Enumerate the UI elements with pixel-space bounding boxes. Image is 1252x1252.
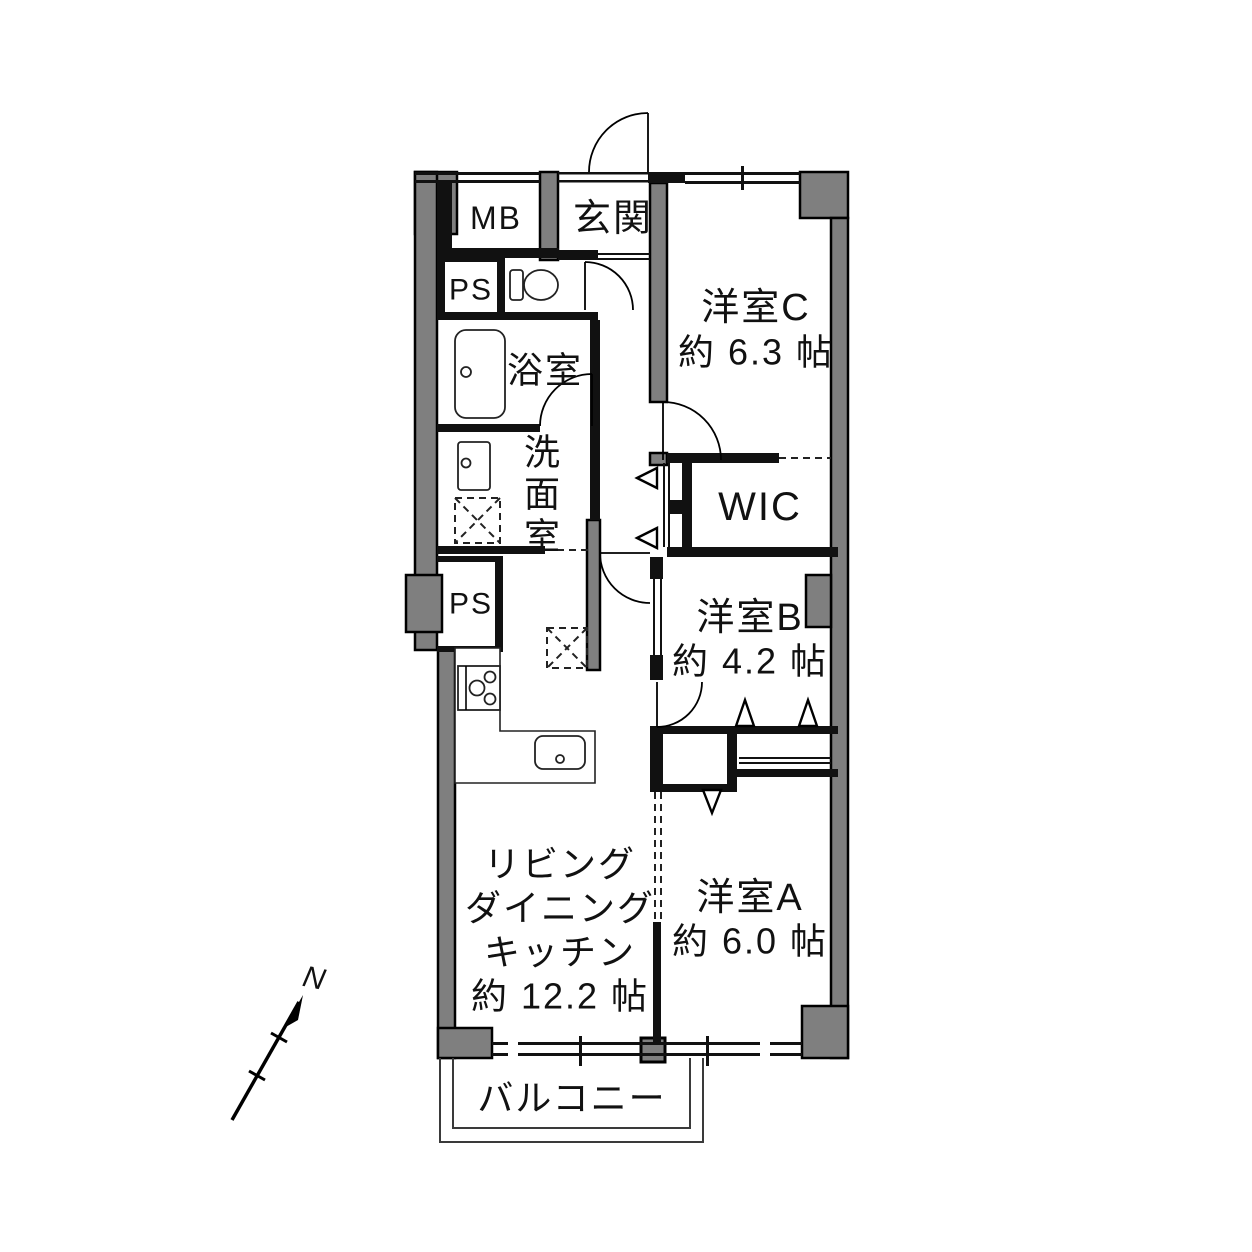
wall-segment: [650, 784, 737, 792]
kitchen-sink-icon: [535, 736, 585, 769]
door-arc: [589, 113, 648, 172]
sliding-door-track: [653, 579, 655, 655]
washing-machine-pan-icon: [455, 498, 500, 543]
wall-segment: [650, 726, 663, 792]
wall-segment: [587, 520, 600, 670]
window-mullion: [741, 166, 744, 190]
window-line: [492, 1042, 802, 1045]
toilet-door: [585, 262, 633, 310]
wall-segment: [438, 648, 455, 1058]
wall-segment: [727, 769, 838, 777]
entrance-sill-line: [558, 172, 650, 175]
wall-segment: [437, 556, 503, 562]
wall-segment: [438, 1028, 492, 1058]
slide-left-arrow-icon: [637, 528, 657, 548]
fold-up-arrow-icon: [736, 700, 754, 726]
wall-segment: [497, 256, 505, 320]
toilet-tank: [510, 270, 523, 300]
wall-line: [415, 180, 540, 183]
wall-line: [415, 172, 540, 175]
floor-plan-svg: N MB 玄関 PS 浴室 洗 面 室 洋室C 約 6.3 帖 WIC 洋室B …: [0, 0, 1252, 1252]
window-line: [492, 1053, 802, 1056]
closet-door-line: [739, 762, 831, 764]
wall-segment: [495, 556, 503, 652]
western-c-size: 約 6.3 帖: [678, 332, 834, 373]
floor-plan: N MB 玄関 PS 浴室 洗 面 室 洋室C 約 6.3 帖 WIC 洋室B …: [0, 0, 1252, 1252]
compass-north-label: N: [300, 960, 330, 997]
sink-outline: [535, 736, 585, 769]
ldk-label-line1: リビング: [484, 844, 636, 885]
wall-segment: [648, 172, 685, 183]
western-b-size: 約 4.2 帖: [672, 641, 828, 682]
kitchen-counter-icon: [455, 648, 595, 783]
fold-up-arrow-icon: [799, 700, 817, 726]
ldk-label-line2: ダイニング: [465, 888, 655, 929]
wall-segment: [668, 500, 682, 514]
wall-segment: [667, 453, 779, 463]
entrance-door: [589, 113, 648, 172]
window-mullion: [706, 1036, 709, 1066]
entrance-step-line: [558, 258, 650, 260]
washroom-label-char3: 室: [524, 516, 562, 557]
door-arc: [657, 682, 702, 727]
wash-basin-icon: [458, 442, 490, 490]
stove-burner: [485, 694, 496, 705]
stove-icon: [458, 666, 500, 710]
hall-ldk-door: [600, 553, 650, 603]
wall-segment: [437, 256, 505, 262]
basin-faucet: [462, 459, 471, 468]
western-a-label: 洋室A: [696, 877, 803, 919]
stove-burner: [470, 681, 485, 696]
balcony-label: バルコニー: [477, 1078, 666, 1119]
compass: N: [232, 960, 330, 1120]
western-c-door: [663, 402, 721, 460]
toilet-bowl: [524, 270, 558, 300]
wall-segment: [667, 547, 838, 557]
door-arc: [600, 553, 650, 603]
entrance-sill-line: [558, 180, 650, 183]
slide-left-arrow-icon: [637, 468, 657, 488]
ps-lower-label: PS: [449, 588, 493, 621]
sliding-door-track: [663, 463, 665, 547]
western-c-label: 洋室C: [701, 287, 810, 329]
wall-segment: [406, 575, 442, 632]
storage-pan-icon: [547, 628, 587, 668]
mb-label: MB: [470, 200, 522, 236]
washroom-label-char2: 面: [524, 474, 562, 515]
washroom-label-char1: 洗: [524, 432, 562, 473]
door-arc: [663, 402, 721, 460]
window-sash-gap: [508, 1040, 518, 1060]
door-arc: [585, 262, 633, 310]
ldk-label-line3: キッチン: [484, 932, 636, 973]
wall-segment: [653, 922, 661, 1042]
bathtub-drain: [461, 367, 471, 377]
wall-segment: [437, 183, 452, 256]
wall-segment: [802, 1006, 848, 1058]
stove-burner: [485, 672, 496, 683]
fold-down-arrow-icon: [703, 790, 721, 813]
sliding-door-track: [668, 463, 670, 547]
ps-upper-label: PS: [449, 274, 493, 307]
window-sash-gap: [760, 1040, 770, 1060]
wall-segment: [682, 463, 692, 547]
sink-drain: [556, 755, 564, 763]
western-a-door: [657, 682, 702, 727]
wic-label: WIC: [718, 485, 802, 529]
wall-segment: [650, 557, 663, 579]
wall-segment: [727, 734, 737, 792]
wall-segment: [437, 256, 445, 320]
western-a-size: 約 6.0 帖: [672, 921, 828, 962]
toilet-icon: [510, 270, 558, 300]
window-mullion: [579, 1036, 582, 1066]
wall-segment: [800, 172, 848, 218]
closet-door-line: [739, 757, 831, 759]
wall-segment: [437, 312, 598, 320]
room-labels: MB 玄関 PS 浴室 洗 面 室 洋室C 約 6.3 帖 WIC 洋室B 約 …: [449, 198, 834, 1119]
wall-segment: [650, 655, 663, 680]
sliding-door-track: [660, 579, 662, 655]
ldk-label-size: 約 12.2 帖: [471, 976, 649, 1017]
wall-segment: [505, 250, 598, 258]
wall-segment: [806, 575, 831, 627]
western-b-label: 洋室B: [696, 597, 803, 639]
wall-segment: [540, 172, 558, 260]
bathtub-icon: [455, 330, 505, 418]
bathroom-label: 浴室: [507, 350, 583, 391]
entrance-label: 玄関: [573, 198, 653, 240]
